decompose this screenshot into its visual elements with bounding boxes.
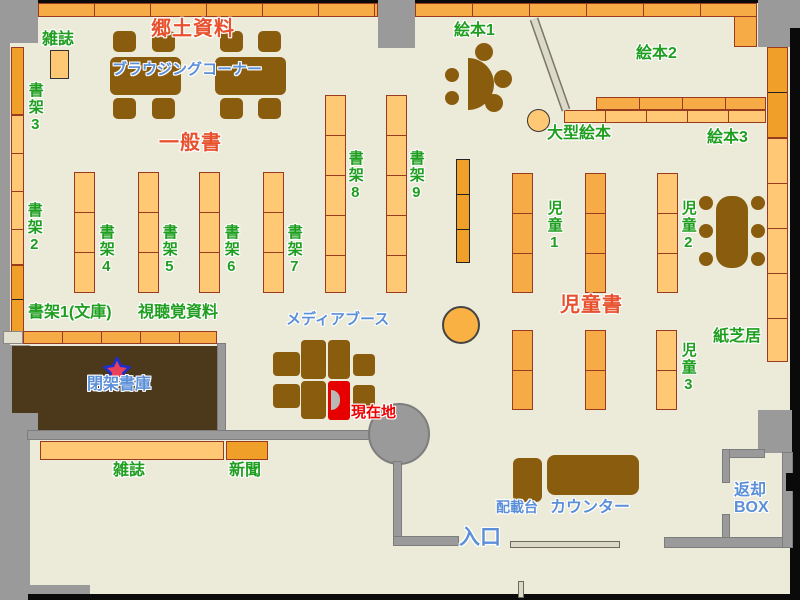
- area-label-ehon3: 絵本3: [707, 130, 748, 147]
- shelf-label-shoka1-bunko: 書架1(文庫): [28, 305, 112, 322]
- shelf-label-shoka5: 書架5: [161, 224, 177, 277]
- wall-shelf-right-upper: [767, 47, 788, 138]
- shelf-label-newspaper: 新聞: [229, 463, 261, 480]
- stack-shoka6: [199, 172, 220, 293]
- current-location-label: 現在地: [351, 405, 396, 421]
- current-location-booth: [328, 381, 350, 420]
- wall-returnbox-bottom: [665, 538, 792, 547]
- wall-entrance-bottom: [394, 537, 458, 545]
- shelf-label-jido1: 児童1: [546, 200, 562, 253]
- area-label-ehon2: 絵本2: [636, 46, 677, 63]
- magazine-shelf-top: [50, 50, 69, 79]
- shelf-label-shoka6: 書架6: [223, 224, 239, 277]
- stack-shoka7: [263, 172, 284, 293]
- label-return-box-line2: BOX: [734, 500, 769, 517]
- media-booth-seat: [273, 352, 300, 376]
- area-label-ehon1: 絵本1: [454, 23, 495, 40]
- label-return-desk: 配載台: [496, 500, 538, 515]
- wall-returnbox-block: [758, 410, 792, 453]
- browsing-chair: [258, 31, 281, 52]
- browsing-chair: [258, 98, 281, 119]
- book-return-desk: [513, 458, 542, 502]
- shelf-label-jido3: 児童3: [680, 342, 696, 395]
- media-booth-unit: [328, 340, 350, 379]
- media-booth-seat: [353, 354, 375, 376]
- browsing-chair: [113, 98, 136, 119]
- wall-shelf-top-corner: [734, 16, 757, 47]
- round-table: [442, 306, 480, 344]
- stack-jido-lower-2: [585, 330, 606, 410]
- wall-entrance-left: [394, 462, 401, 542]
- ehon-shelf-row-lower: [564, 110, 766, 123]
- media-booth-unit: [301, 340, 326, 379]
- magazine-shelf-bottom: [40, 441, 224, 460]
- shelf-label-shoka8: 書架8: [347, 150, 363, 203]
- stack-shoka8: [325, 95, 346, 293]
- shelf-label-shoka4: 書架4: [98, 224, 114, 277]
- stack-shoka4: [74, 172, 95, 293]
- shelf-label-jido2: 児童2: [680, 200, 696, 253]
- stack-jido1: [512, 173, 533, 293]
- booth-door-icon: [331, 390, 340, 410]
- shelf-label-shoka2: 書架2: [26, 202, 42, 255]
- children-chair: [751, 196, 765, 210]
- shelf-label-audiovisual: 視聴覚資料: [138, 305, 218, 322]
- shelf-label-magazines-bottom: 雑誌: [113, 463, 145, 480]
- wall-closed-stacks-right: [218, 344, 225, 439]
- children-chair: [751, 252, 765, 266]
- shelf-label-magazines-top: 雑誌: [42, 32, 74, 49]
- browsing-chair: [152, 98, 175, 119]
- shelf-row-end-piece: [3, 331, 23, 344]
- area-label-closed-stacks: 閉架書庫: [87, 377, 151, 394]
- wall-shelf-left-middle: [11, 115, 24, 265]
- area-label-browsing-corner: ブラウジングコーナー: [112, 62, 262, 78]
- area-label-media-booth: メディアブース: [286, 312, 389, 328]
- stack-jido2-b: [657, 173, 678, 293]
- wall-returnbox-left-upper: [723, 450, 729, 482]
- label-counter: カウンター: [550, 500, 630, 517]
- counter-desk: [547, 455, 639, 495]
- stack-jido3: [656, 330, 677, 410]
- wall-closed-stacks-notch: [0, 413, 38, 432]
- wall-pillar-top-center: [378, 0, 415, 48]
- wall-shelf-left-lower: [11, 265, 24, 333]
- ehon-shelf-row-upper: [596, 97, 766, 110]
- shelf-row-bunko-av: [23, 331, 217, 344]
- media-booth-unit: [301, 381, 326, 419]
- browsing-chair: [113, 31, 136, 52]
- area-label-local-materials: 郷土資料: [151, 19, 235, 40]
- wall-shelf-top-right: [415, 3, 757, 17]
- stack-jido-lower-1: [512, 330, 533, 410]
- children-chair: [751, 224, 765, 238]
- library-floor-map: 郷土資料 雑誌 ブラウジングコーナー 書架3 一般書 絵本1 絵本2 大型絵本 …: [0, 0, 800, 600]
- wall-shelf-left-upper: [11, 47, 24, 115]
- children-chair: [699, 224, 713, 238]
- wall-shelf-right-lower: [767, 138, 788, 362]
- shelf-label-kamishibai: 紙芝居: [713, 329, 761, 346]
- shelf-label-shoka9: 書架9: [408, 150, 424, 203]
- wall-shelf-top-left: [38, 3, 378, 17]
- label-entrance: 入口: [459, 527, 501, 549]
- stack-jido2-a: [585, 173, 606, 293]
- children-chair: [699, 252, 713, 266]
- area-label-general-books: 一般書: [159, 133, 222, 154]
- area-label-large-picture-books: 大型絵本: [547, 126, 611, 143]
- shelf-label-shoka7: 書架7: [286, 224, 302, 277]
- newspaper-shelf: [226, 441, 268, 460]
- children-chair: [699, 196, 713, 210]
- entrance-post: [518, 581, 524, 598]
- shelf-label-shoka3: 書架3: [27, 82, 43, 135]
- returnbox-slot: [786, 473, 800, 491]
- wall-returnbox-right: [783, 453, 792, 547]
- label-return-box: 返却 BOX: [734, 483, 769, 517]
- wall-lounge-top: [28, 431, 373, 439]
- wall-returnbox-top: [723, 450, 764, 457]
- stack-narrow: [456, 159, 470, 263]
- children-table: [716, 196, 748, 268]
- entrance-glass-wall: [510, 541, 620, 548]
- stack-shoka9: [386, 95, 407, 293]
- browsing-chair: [220, 98, 243, 119]
- media-booth-seat: [273, 384, 300, 408]
- area-label-children-books: 児童書: [560, 295, 623, 316]
- wall-block-top-left: [0, 0, 38, 43]
- stack-shoka5: [138, 172, 159, 293]
- label-return-box-line1: 返却: [734, 483, 769, 500]
- outer-border-bottom: [28, 594, 800, 600]
